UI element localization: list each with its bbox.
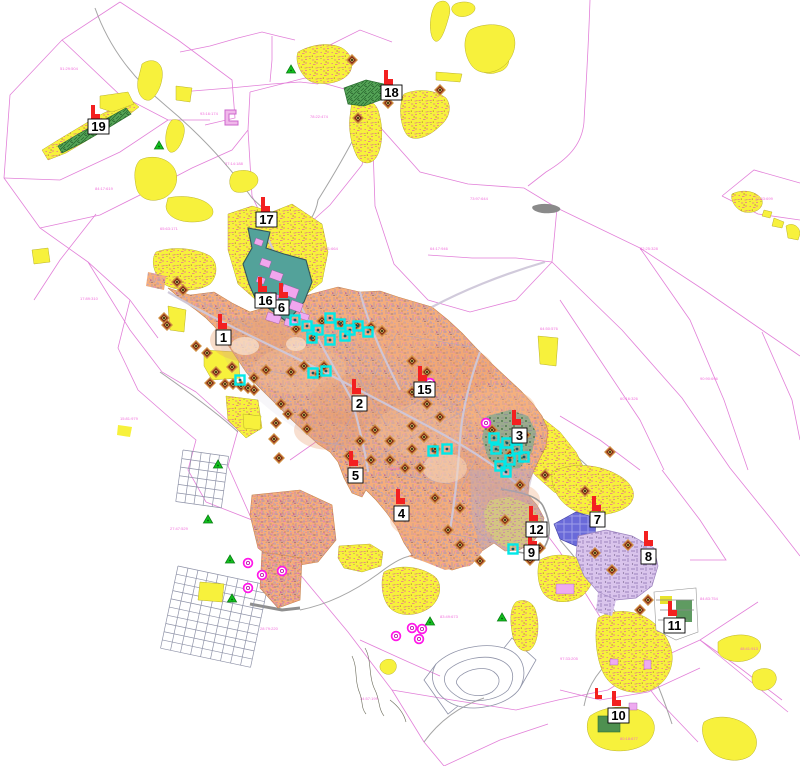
svg-text:93:16:174: 93:16:174	[200, 111, 219, 116]
svg-text:64:17:946: 64:17:946	[430, 246, 449, 251]
svg-text:17:83:699: 17:83:699	[755, 196, 774, 201]
svg-text:3: 3	[516, 428, 523, 443]
svg-text:19: 19	[91, 119, 105, 134]
svg-text:64:50:576: 64:50:576	[540, 326, 559, 331]
svg-text:1: 1	[220, 330, 227, 345]
svg-text:9: 9	[528, 545, 535, 560]
svg-text:12: 12	[529, 522, 543, 537]
svg-text:73:97:644: 73:97:644	[470, 196, 489, 201]
svg-text:5: 5	[352, 468, 359, 483]
svg-text:10: 10	[611, 708, 625, 723]
svg-text:6: 6	[278, 300, 285, 315]
svg-text:11: 11	[668, 618, 682, 633]
svg-text:84:83:754: 84:83:754	[700, 596, 719, 601]
svg-text:7: 7	[594, 512, 601, 527]
svg-text:65:63:171: 65:63:171	[160, 226, 179, 231]
svg-text:37:14:188: 37:14:188	[225, 161, 244, 166]
svg-text:90:90:696: 90:90:696	[700, 376, 719, 381]
svg-text:27:47:529: 27:47:529	[170, 526, 189, 531]
svg-text:15: 15	[417, 382, 431, 397]
svg-text:60:16:326: 60:16:326	[620, 396, 639, 401]
svg-text:16: 16	[258, 293, 272, 308]
svg-text:17:89:310: 17:89:310	[80, 296, 99, 301]
svg-text:80:18:677: 80:18:677	[620, 736, 639, 741]
svg-text:34:57:199: 34:57:199	[360, 696, 379, 701]
svg-text:40:21:664: 40:21:664	[320, 246, 339, 251]
svg-text:8: 8	[645, 549, 652, 564]
svg-text:84:17:619: 84:17:619	[95, 186, 114, 191]
svg-text:2: 2	[356, 396, 363, 411]
svg-text:51:29:504: 51:29:504	[60, 66, 79, 71]
svg-text:78:22:474: 78:22:474	[310, 114, 329, 119]
svg-text:4: 4	[398, 506, 406, 521]
svg-text:15:81:979: 15:81:979	[120, 416, 139, 421]
svg-text:83:49:673: 83:49:673	[440, 614, 459, 619]
svg-text:48:41:913: 48:41:913	[740, 646, 759, 651]
svg-text:28:79:220: 28:79:220	[260, 626, 279, 631]
svg-text:18: 18	[384, 85, 398, 100]
svg-text:82:25:328: 82:25:328	[640, 246, 659, 251]
svg-text:97:33:205: 97:33:205	[560, 656, 579, 661]
svg-text:17: 17	[259, 212, 273, 227]
